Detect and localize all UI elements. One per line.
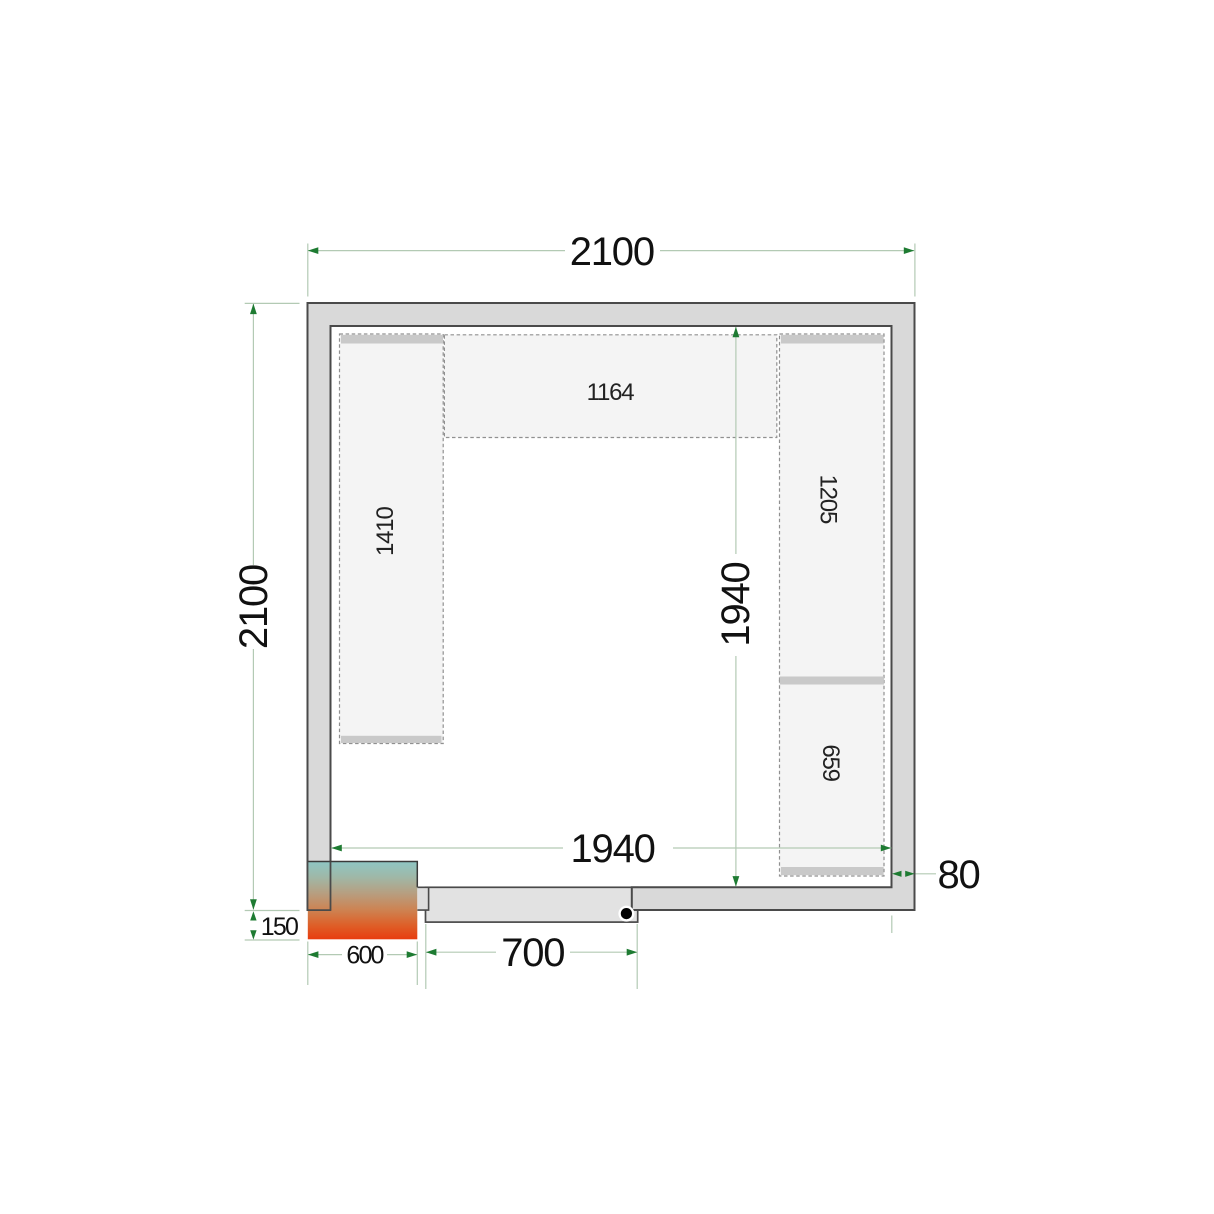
svg-text:1410: 1410 xyxy=(372,507,399,556)
svg-text:150: 150 xyxy=(261,913,298,941)
svg-text:1940: 1940 xyxy=(571,827,655,871)
svg-text:2100: 2100 xyxy=(570,230,654,274)
svg-text:80: 80 xyxy=(937,853,979,897)
svg-text:1205: 1205 xyxy=(814,475,841,524)
svg-text:2100: 2100 xyxy=(232,565,276,649)
svg-text:1940: 1940 xyxy=(714,562,758,646)
svg-text:1164: 1164 xyxy=(587,379,635,406)
svg-text:600: 600 xyxy=(346,942,383,970)
svg-text:659: 659 xyxy=(817,744,844,781)
svg-text:700: 700 xyxy=(501,931,564,975)
